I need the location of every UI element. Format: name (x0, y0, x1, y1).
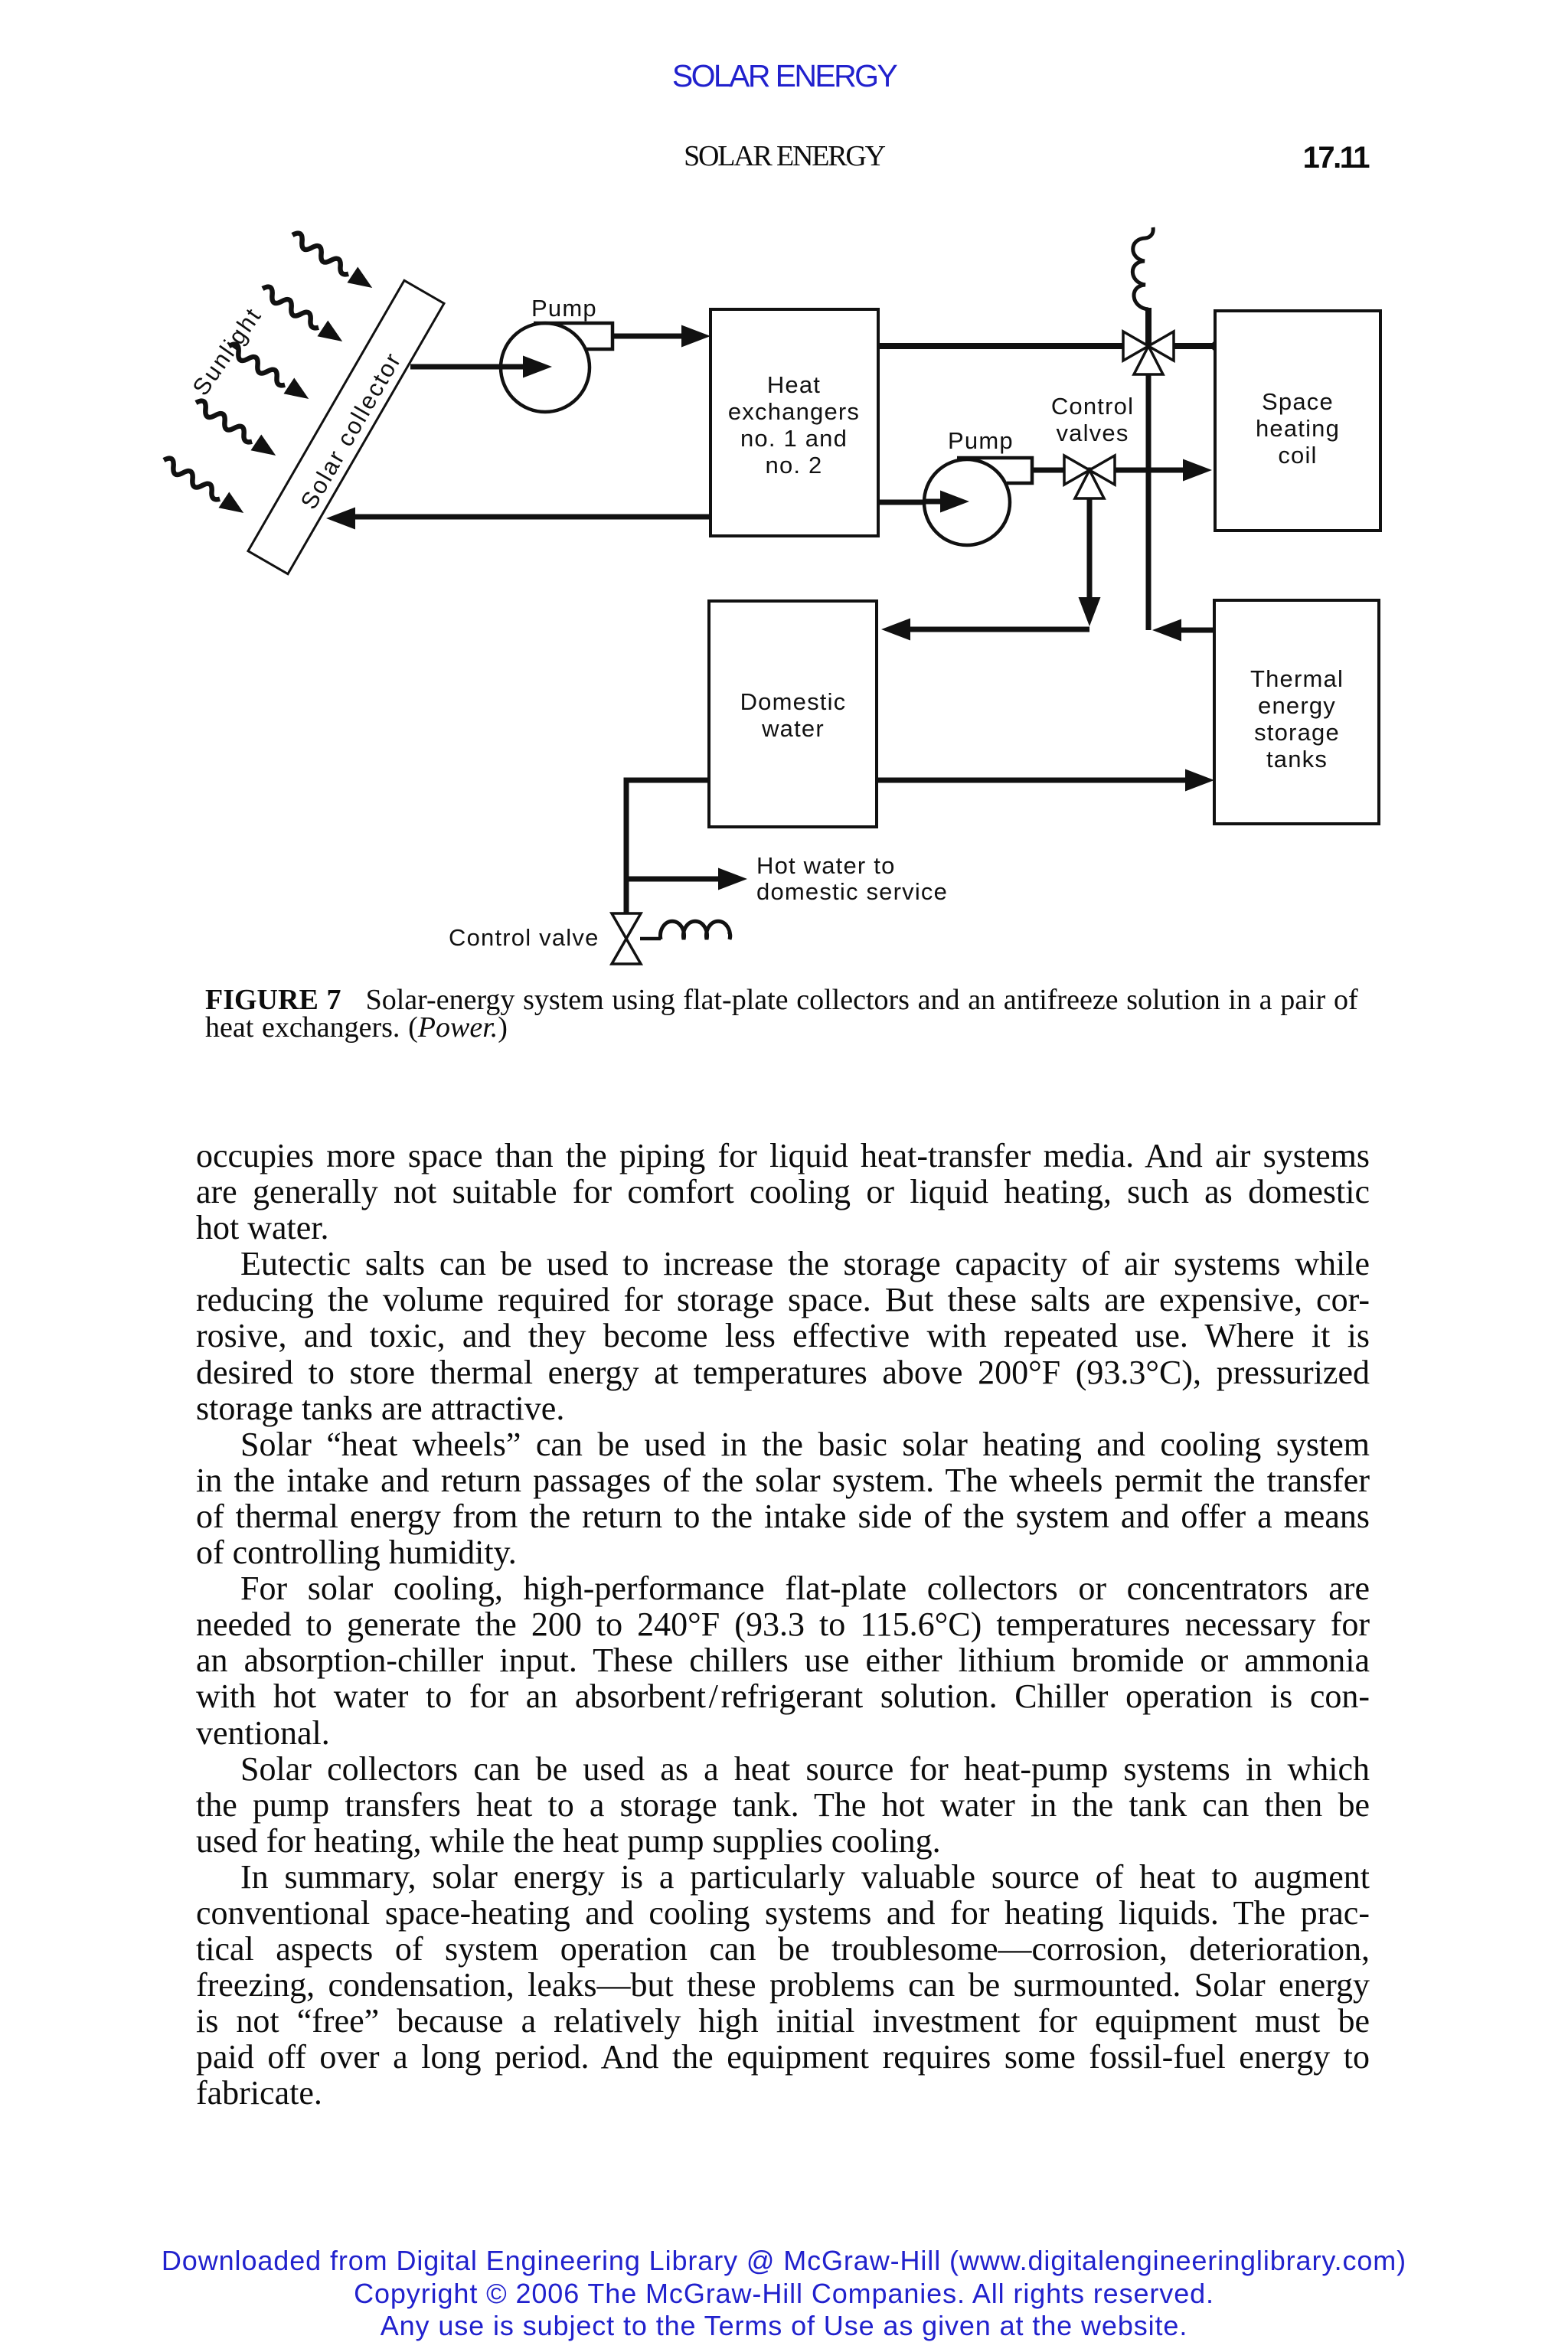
svg-text:Pump: Pump (531, 295, 597, 322)
svg-text:Domestic: Domestic (740, 688, 847, 715)
svg-text:Pump: Pump (948, 427, 1014, 454)
svg-text:Thermal: Thermal (1250, 665, 1344, 692)
svg-text:coil: coil (1278, 442, 1317, 469)
svg-text:domestic service: domestic service (756, 878, 948, 905)
svg-text:heating: heating (1256, 415, 1340, 442)
svg-text:storage: storage (1254, 719, 1340, 746)
svg-text:Control valve: Control valve (449, 924, 599, 951)
svg-text:tanks: tanks (1266, 746, 1328, 773)
svg-text:valves: valves (1056, 420, 1129, 446)
svg-text:Space: Space (1262, 388, 1334, 415)
svg-text:Control: Control (1051, 393, 1134, 420)
svg-text:no. 2: no. 2 (766, 452, 823, 479)
svg-text:exchangers: exchangers (728, 398, 860, 425)
svg-text:energy: energy (1258, 692, 1336, 719)
svg-text:Sunlight: Sunlight (187, 302, 266, 400)
svg-text:no. 1 and: no. 1 and (740, 425, 848, 452)
svg-text:Hot water to: Hot water to (756, 852, 896, 879)
svg-text:water: water (761, 715, 825, 742)
svg-text:Heat: Heat (767, 371, 821, 398)
